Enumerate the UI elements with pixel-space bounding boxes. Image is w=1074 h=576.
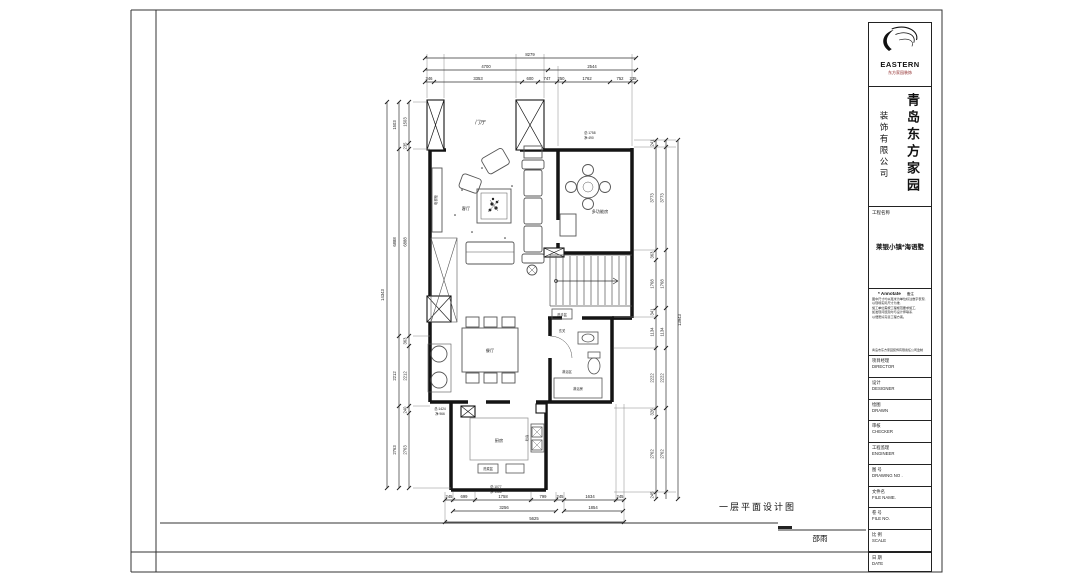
dimension-label: 6888 — [403, 237, 408, 247]
dimension-label: 363 — [403, 337, 408, 345]
dimension-label: 326 — [650, 408, 655, 416]
dimension-label: 235 — [630, 76, 638, 81]
field-label-en: FILE NO. — [872, 516, 931, 521]
field-label-en: DRAWN — [872, 408, 931, 413]
furniture-label: 洗手盆 — [557, 312, 568, 317]
company-type-vertical: 装饰有限公司 — [878, 111, 890, 180]
note-label: 净:490 — [584, 135, 594, 140]
dimension-label: 2212 — [403, 371, 408, 381]
room-label: 多功能房 — [592, 208, 609, 215]
furniture-label: 洗菜盆 — [483, 466, 494, 471]
dimension-label: 3773 — [650, 193, 655, 203]
dimension-label: 3256 — [499, 505, 509, 510]
field-label-en: DIRECTOR — [872, 364, 931, 369]
dimension-label: 2212 — [392, 371, 397, 381]
dimension-label: 1758 — [498, 494, 508, 499]
dimension-label: 250 — [558, 76, 566, 81]
dimension-label: 600 — [527, 76, 535, 81]
room-label: 玄关 — [559, 328, 566, 333]
logo-subtitle: 东方家园装饰 — [869, 70, 931, 76]
dimension-label: 1768 — [650, 279, 655, 289]
dimension-label: 799 — [540, 494, 548, 499]
dimension-label: 241 — [650, 139, 655, 147]
dimension-label: 1134 — [660, 327, 665, 337]
dimension-label: 2763 — [403, 445, 408, 455]
field-row-drawing-no: 图 号 DRAWING NO . — [869, 465, 931, 487]
room-label: 门厅 — [475, 119, 486, 126]
dimension-label: 2762 — [660, 449, 665, 459]
company-name-block: 青岛东方家园 装饰有限公司 — [869, 87, 931, 207]
sheet-frame — [131, 10, 942, 572]
dimension-label: 240 — [403, 406, 408, 414]
dimension-label: 2222 — [650, 373, 655, 383]
field-label-en: DRAWING NO . — [872, 473, 931, 478]
field-row-file-no: 卷 号 FILE NO. — [869, 508, 931, 530]
dimension-label: 752 — [617, 76, 625, 81]
field-label-en: ENGINEER — [872, 451, 931, 456]
dimension-label: 235 — [403, 142, 408, 150]
dimension-label: 341 — [650, 308, 655, 316]
room-label: 厨房 — [495, 437, 503, 444]
company-logo: EASTERN 东方家园装饰 — [869, 23, 931, 87]
wall-pillars — [427, 100, 564, 417]
dimension-label: 2763 — [392, 445, 397, 455]
room-label: 客厅 — [462, 205, 470, 212]
field-row-checker: 审核 CHECKER — [869, 421, 931, 443]
room-label: 淋浴房 — [573, 386, 584, 391]
dimension-label: 13943 — [677, 314, 682, 326]
dimension-label: 2762 — [650, 449, 655, 459]
dimension-label: 2222 — [660, 373, 665, 383]
note-label: 总:1424 — [434, 406, 446, 411]
note-label: 总:1077 — [490, 484, 502, 489]
dimension-label: 747 — [544, 76, 552, 81]
field-row-engineer: 工程监理 ENGINEER — [869, 443, 931, 465]
kitchen-furniture — [470, 418, 544, 473]
field-row-director: 项目经理 DIRECTOR — [869, 356, 931, 378]
field-row-drawn: 绘图 DRAWN — [869, 400, 931, 422]
dimension-label: 1503 — [403, 117, 408, 127]
title-fields: 项目经理 DIRECTOR 设计 DESIGNER 绘图 DRAWN 审核 CH… — [869, 356, 931, 551]
bath-fixtures — [550, 309, 602, 398]
dimension-label: 6888 — [392, 237, 397, 247]
dimension-label: 1134 — [650, 327, 655, 337]
dining-furniture — [428, 317, 518, 392]
dimension-label: 14343 — [380, 289, 385, 301]
field-label-en: DATE — [872, 561, 931, 566]
dimension-label: 245 — [617, 494, 625, 499]
dimension-label: 363 — [650, 251, 655, 259]
dimension-label: 699 — [461, 494, 469, 499]
dimension-label: 1503 — [392, 120, 397, 130]
multi-room-furniture — [560, 165, 611, 237]
dimension-label: 245 — [557, 494, 565, 499]
project-name: 莱银小镇*海语墅 — [869, 241, 931, 251]
stamp-mark — [778, 526, 792, 529]
annotate-footer: 青岛市东方家园装饰有限责任公司监制 — [872, 348, 923, 352]
logo-brand: EASTERN — [869, 60, 931, 69]
field-label-en: DESIGNER — [872, 386, 931, 391]
annotate-block: * Annotate备注 图中尺寸均以毫米为单位标注数字表现, 以现场实际尺寸为… — [869, 289, 931, 356]
stairs — [550, 255, 632, 306]
annotate-note-line: 以便更好完善工程方案。 — [872, 315, 928, 319]
field-label-en: SCALE — [872, 538, 931, 543]
dimension-label: 1634 — [585, 494, 595, 499]
stamp-name: 邵雨 — [785, 533, 855, 544]
note-label: 总:1758 — [584, 130, 596, 135]
dimension-label: 2544 — [587, 64, 597, 69]
note-label: 净:1366 — [490, 489, 502, 494]
company-name-vertical: 青岛东方家园 — [903, 93, 922, 195]
field-label-en: FILE NAME. — [872, 495, 931, 500]
title-block: EASTERN 东方家园装饰 青岛东方家园 装饰有限公司 工程名称 莱银小镇*海… — [868, 22, 932, 572]
note-label: 净:966 — [435, 411, 445, 416]
room-label: 餐厅 — [486, 347, 494, 354]
dimension-label: 5625 — [529, 516, 539, 521]
annotate-title-right: 备注 — [907, 292, 914, 296]
field-row-scale: 比 例 SCALE — [869, 530, 931, 551]
field-row-designer: 设计 DESIGNER — [869, 378, 931, 400]
field-label-en: CHECKER — [872, 429, 931, 434]
dimension-label: 1768 — [660, 279, 665, 289]
furniture-label: 灶台 — [524, 434, 529, 441]
dimension-label: 8279 — [525, 52, 535, 57]
dimension-label: 1854 — [588, 505, 598, 510]
drawing-caption: 一层平面设计图 — [700, 500, 815, 513]
furniture-label: 电视柜 — [433, 194, 438, 205]
room-label: 淋浴区 — [562, 369, 573, 374]
annotate-title: * Annotate — [878, 291, 901, 296]
sheet: 8279 4700 2544 346 3353 600 747 250 1762… — [0, 0, 1074, 576]
dimension-label: 3773 — [660, 193, 665, 203]
eastern-swoosh-logo — [878, 26, 922, 54]
project-name-label: 工程名称 — [872, 210, 890, 216]
project-block: 工程名称 莱银小镇*海语墅 — [869, 207, 931, 289]
field-row-file-name: 文件名 FILE NAME. — [869, 487, 931, 509]
dimension-label: 346 — [426, 76, 434, 81]
dimension-label: 4700 — [481, 64, 491, 69]
field-row-date: 日 期 DATE — [869, 551, 931, 571]
dimension-label: 245 — [650, 491, 655, 499]
dimension-label: 245 — [446, 494, 454, 499]
dimension-label: 1762 — [582, 76, 592, 81]
dimension-label: 3353 — [473, 76, 483, 81]
